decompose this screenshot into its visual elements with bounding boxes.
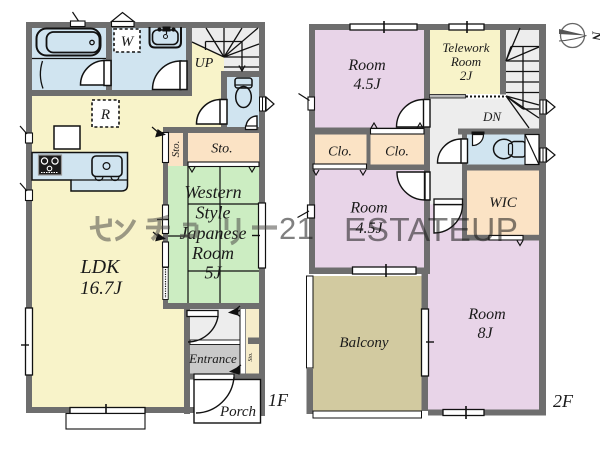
svg-text:Porch: Porch xyxy=(219,404,256,420)
svg-text:2J: 2J xyxy=(460,68,474,83)
svg-text:Telework: Telework xyxy=(442,40,489,55)
svg-text:16.7J: 16.7J xyxy=(80,278,123,299)
svg-text:Sto.: Sto. xyxy=(211,142,232,157)
svg-text:UP: UP xyxy=(195,56,214,71)
svg-text:2F: 2F xyxy=(553,391,574,411)
svg-text:Western: Western xyxy=(184,182,241,202)
svg-text:Balcony: Balcony xyxy=(339,335,388,351)
svg-text:1F: 1F xyxy=(268,390,289,410)
svg-text:Clo.: Clo. xyxy=(328,145,352,160)
svg-text:Room: Room xyxy=(191,243,234,263)
svg-text:21: 21 xyxy=(279,211,314,246)
svg-text:Room: Room xyxy=(347,57,385,74)
svg-text:Sto.: Sto. xyxy=(248,352,254,361)
svg-text:Clo.: Clo. xyxy=(385,145,409,160)
svg-text:W: W xyxy=(121,34,135,50)
svg-text:ESTATEUP: ESTATEUP xyxy=(344,212,518,249)
svg-text:R: R xyxy=(100,107,110,123)
svg-text:WIC: WIC xyxy=(489,195,517,211)
svg-text:Room: Room xyxy=(467,306,505,323)
svg-text:DN: DN xyxy=(482,109,502,124)
svg-text:5J: 5J xyxy=(205,263,223,283)
svg-text:LDK: LDK xyxy=(80,256,122,278)
svg-text:Sto.: Sto. xyxy=(170,141,182,158)
svg-text:4.5J: 4.5J xyxy=(353,76,381,93)
svg-text:8J: 8J xyxy=(477,325,493,342)
svg-text:Entrance: Entrance xyxy=(188,351,237,366)
svg-text:Room: Room xyxy=(450,54,481,69)
svg-text:N: N xyxy=(590,30,600,41)
